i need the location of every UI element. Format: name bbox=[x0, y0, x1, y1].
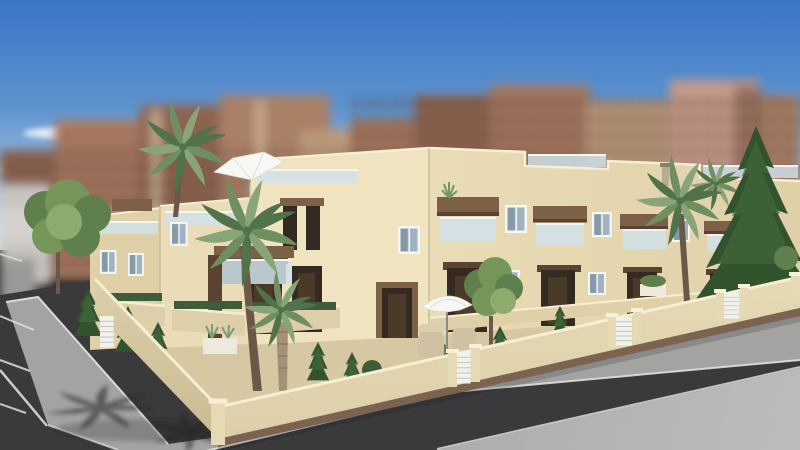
chair-seat bbox=[418, 332, 444, 358]
gate bbox=[724, 293, 739, 319]
window bbox=[170, 222, 188, 246]
balcony-glass bbox=[440, 218, 496, 242]
wicker-chair bbox=[418, 324, 444, 358]
window bbox=[128, 253, 144, 276]
pillar-cap bbox=[789, 272, 800, 276]
planter bbox=[203, 338, 237, 354]
wall-pillar bbox=[716, 291, 724, 321]
bush bbox=[774, 246, 798, 270]
chimney-cap bbox=[660, 163, 671, 167]
architectural-render-image bbox=[0, 0, 800, 450]
window bbox=[398, 226, 420, 254]
front-door bbox=[388, 294, 406, 338]
hedge bbox=[174, 301, 242, 309]
pillar-cap bbox=[606, 313, 618, 317]
roof-terrace-railing bbox=[258, 170, 358, 183]
tree-canopy bbox=[46, 204, 82, 240]
wall-pillar bbox=[471, 346, 480, 382]
balcony-glass bbox=[536, 224, 584, 245]
patio-furniture bbox=[418, 296, 476, 358]
lintel-shadow bbox=[533, 219, 587, 223]
window bbox=[592, 212, 612, 237]
planter-plant bbox=[640, 275, 666, 287]
window bbox=[505, 205, 527, 233]
chimney bbox=[662, 166, 669, 186]
wall-pillar bbox=[791, 274, 799, 304]
wall-pillar bbox=[633, 310, 641, 342]
gate bbox=[616, 317, 632, 346]
wall-pillar bbox=[740, 286, 748, 316]
lintel-shadow bbox=[620, 226, 668, 229]
wall-pillar bbox=[608, 315, 616, 347]
tree-canopy bbox=[490, 288, 516, 314]
wood-lintel bbox=[280, 198, 324, 206]
corner-pillar bbox=[211, 401, 225, 445]
pillar-cap bbox=[469, 344, 482, 348]
entrance-porch bbox=[376, 282, 418, 338]
pillar-cap bbox=[631, 308, 643, 312]
recessed-window bbox=[306, 206, 320, 250]
wood-lintel bbox=[533, 206, 587, 219]
pillar-cap bbox=[209, 399, 227, 403]
window bbox=[588, 272, 606, 295]
wall-pillar bbox=[448, 351, 457, 387]
pillar-cap bbox=[714, 289, 726, 293]
lintel-shadow bbox=[437, 212, 499, 216]
wood-lintel bbox=[112, 199, 152, 211]
tree-trunk bbox=[56, 252, 60, 294]
gate bbox=[457, 352, 471, 384]
pillar-cap bbox=[738, 284, 750, 288]
gate bbox=[100, 316, 114, 348]
balcony-glass bbox=[216, 260, 292, 284]
balcony-glass bbox=[623, 230, 666, 249]
window bbox=[100, 250, 117, 274]
render-canvas bbox=[0, 0, 800, 450]
roof-terrace-railing bbox=[528, 155, 606, 167]
wood-lintel bbox=[437, 197, 499, 212]
